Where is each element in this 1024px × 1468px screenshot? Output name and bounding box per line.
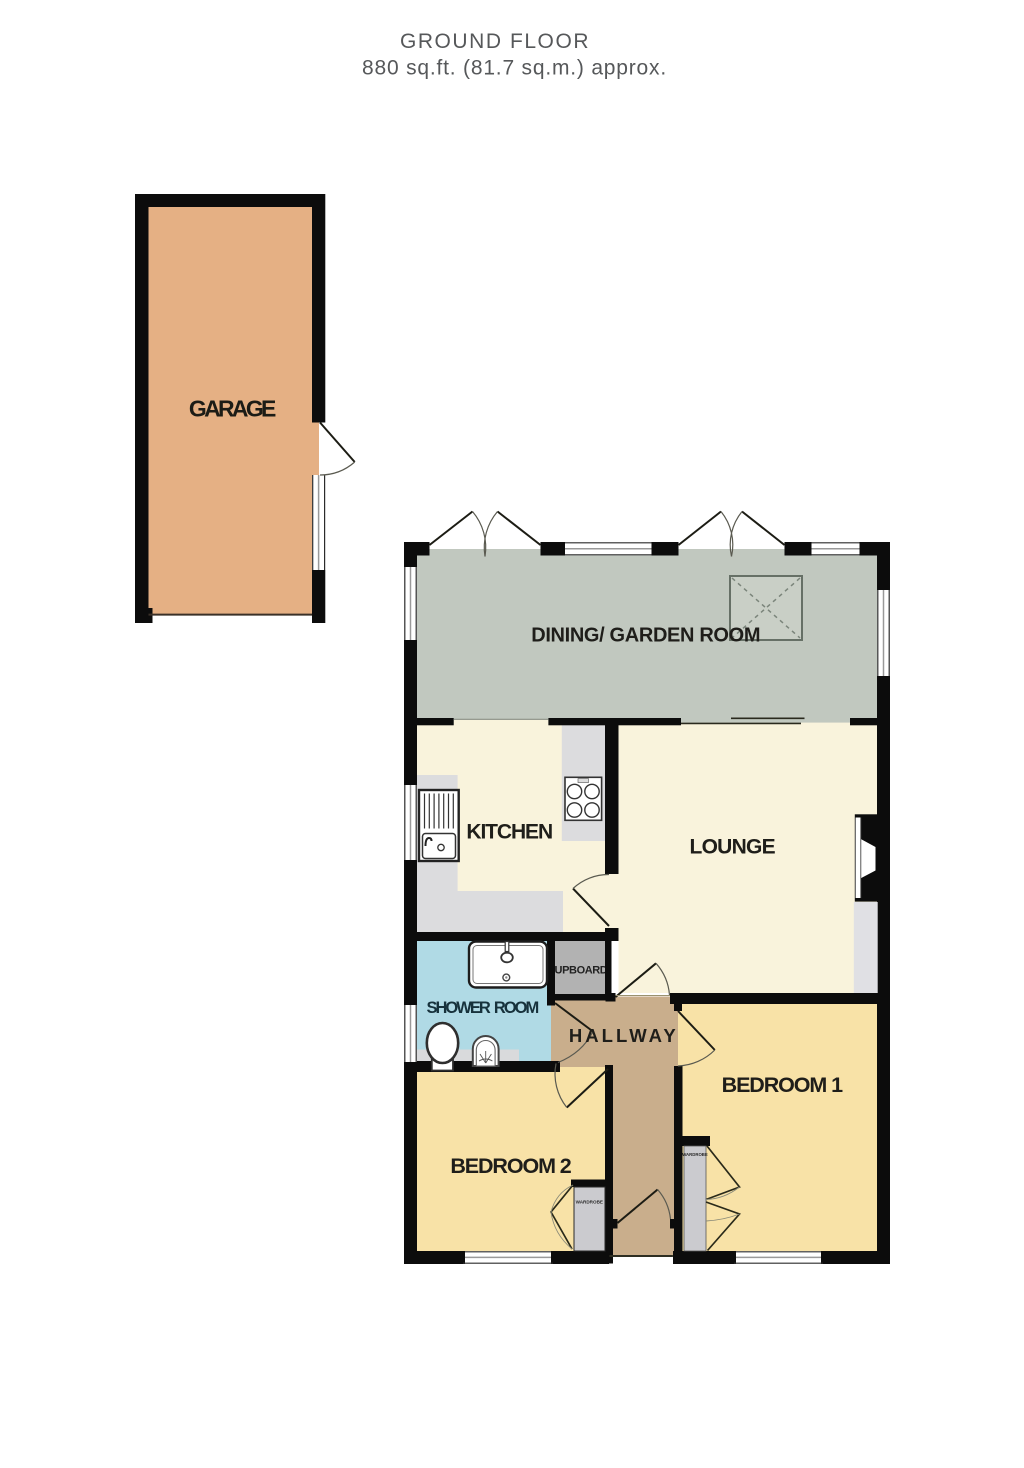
svg-text:BEDROOM 2: BEDROOM 2 xyxy=(450,1154,571,1178)
svg-text:WARDROBE: WARDROBE xyxy=(682,1152,708,1157)
svg-text:HALLWAY: HALLWAY xyxy=(569,1025,679,1046)
svg-text:WARDROBE: WARDROBE xyxy=(576,1200,603,1205)
svg-text:DINING/ GARDEN ROOM: DINING/ GARDEN ROOM xyxy=(531,625,760,647)
svg-text:KITCHEN: KITCHEN xyxy=(466,821,552,844)
svg-text:LOUNGE: LOUNGE xyxy=(690,835,776,858)
svg-text:BEDROOM 1: BEDROOM 1 xyxy=(722,1073,843,1097)
svg-text:GROUND FLOOR: GROUND FLOOR xyxy=(400,30,590,53)
svg-text:SHOWER ROOM: SHOWER ROOM xyxy=(427,999,539,1017)
svg-text:GARAGE: GARAGE xyxy=(189,396,276,422)
svg-text:880 sq.ft. (81.7 sq.m.) approx: 880 sq.ft. (81.7 sq.m.) approx. xyxy=(362,57,667,80)
svg-text:CUPBOARD: CUPBOARD xyxy=(547,965,608,977)
